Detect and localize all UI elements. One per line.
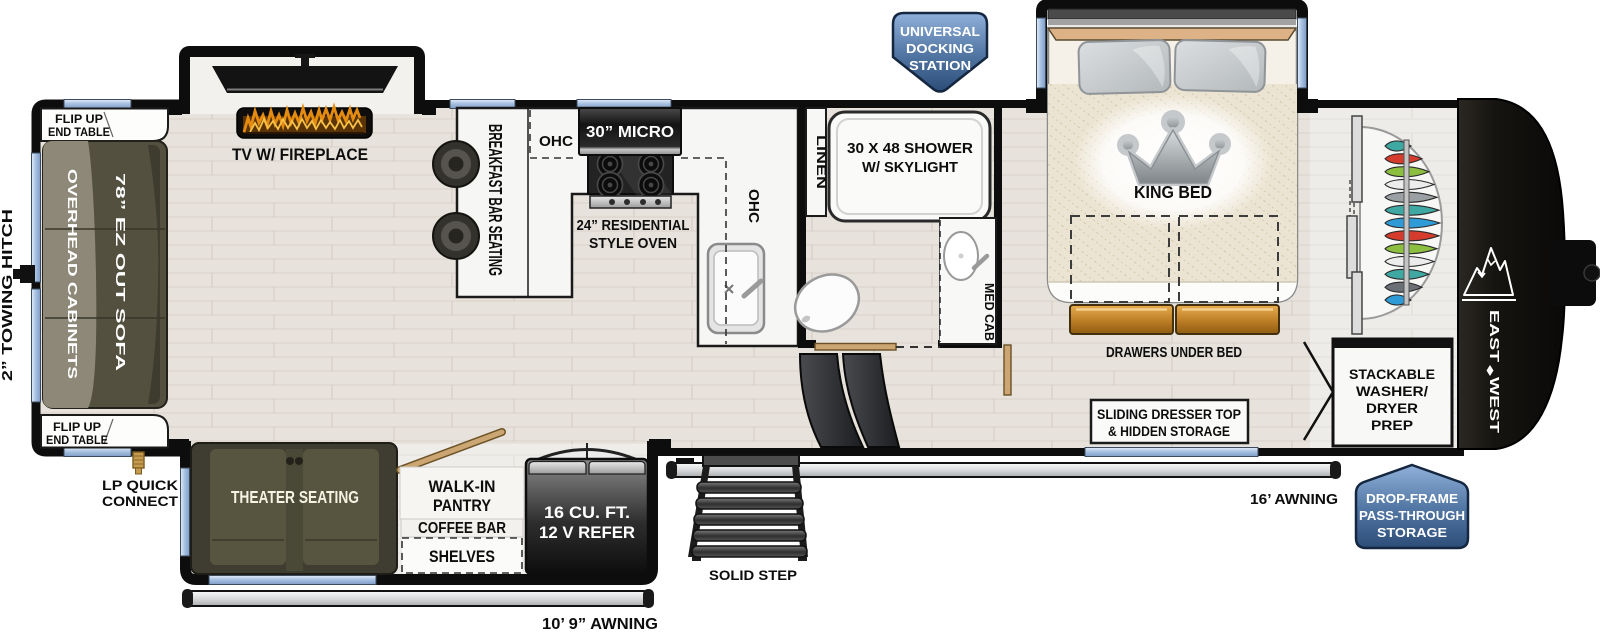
svg-text:PANTRY: PANTRY bbox=[433, 496, 492, 515]
svg-text:END TABLE: END TABLE bbox=[46, 435, 108, 447]
svg-text:BREAKFAST BAR SEATING: BREAKFAST BAR SEATING bbox=[485, 124, 505, 276]
svg-text:OVERHEAD CABINETS: OVERHEAD CABINETS bbox=[65, 169, 79, 379]
svg-text:WASHER/: WASHER/ bbox=[1356, 384, 1428, 399]
svg-text:16’ AWNING: 16’ AWNING bbox=[1250, 492, 1338, 508]
svg-text:W/ SKYLIGHT: W/ SKYLIGHT bbox=[862, 159, 958, 176]
svg-text:DROP-FRAME: DROP-FRAME bbox=[1366, 491, 1458, 506]
svg-text:PREP: PREP bbox=[1371, 418, 1413, 433]
svg-text:10’ 9” AWNING: 10’ 9” AWNING bbox=[542, 616, 658, 633]
svg-text:END TABLE: END TABLE bbox=[48, 127, 110, 139]
svg-text:STORAGE: STORAGE bbox=[1377, 525, 1447, 540]
svg-text:FLIP UP: FLIP UP bbox=[53, 422, 101, 434]
svg-text:WEST: WEST bbox=[1487, 377, 1501, 434]
svg-text:DRYER: DRYER bbox=[1366, 401, 1418, 416]
svg-text:STATION: STATION bbox=[909, 58, 971, 73]
svg-text:LINEN: LINEN bbox=[814, 135, 828, 189]
svg-text:TV W/ FIREPLACE: TV W/ FIREPLACE bbox=[232, 145, 368, 164]
svg-text:30” MICRO: 30” MICRO bbox=[586, 124, 674, 141]
svg-text:2” TOWING HITCH: 2” TOWING HITCH bbox=[0, 209, 16, 381]
svg-text:STACKABLE: STACKABLE bbox=[1349, 367, 1435, 382]
svg-text:CONNECT: CONNECT bbox=[102, 494, 179, 509]
svg-text:FLIP UP: FLIP UP bbox=[55, 114, 103, 126]
svg-text:UNIVERSAL: UNIVERSAL bbox=[900, 24, 980, 39]
svg-text:SHELVES: SHELVES bbox=[429, 547, 495, 566]
svg-text:COFFEE BAR: COFFEE BAR bbox=[418, 520, 506, 537]
svg-text:MED CAB: MED CAB bbox=[982, 283, 996, 341]
svg-text:STYLE OVEN: STYLE OVEN bbox=[589, 235, 677, 252]
svg-text:THEATER SEATING: THEATER SEATING bbox=[231, 487, 359, 507]
svg-text:WALK-IN: WALK-IN bbox=[429, 477, 496, 496]
svg-text:78” EZ OUT SOFA: 78” EZ OUT SOFA bbox=[113, 173, 127, 371]
svg-text:EAST: EAST bbox=[1487, 310, 1501, 363]
svg-text:KING BED: KING BED bbox=[1134, 182, 1212, 202]
svg-text:16 CU. FT.: 16 CU. FT. bbox=[544, 503, 630, 522]
svg-text:30 X 48 SHOWER: 30 X 48 SHOWER bbox=[847, 140, 973, 157]
svg-text:& HIDDEN STORAGE: & HIDDEN STORAGE bbox=[1108, 424, 1230, 439]
svg-text:OHC: OHC bbox=[745, 189, 762, 223]
svg-text:SLIDING DRESSER TOP: SLIDING DRESSER TOP bbox=[1097, 407, 1241, 422]
svg-text:24” RESIDENTIAL: 24” RESIDENTIAL bbox=[577, 217, 690, 234]
svg-text:PASS-THROUGH: PASS-THROUGH bbox=[1359, 508, 1465, 523]
svg-text:SOLID STEP: SOLID STEP bbox=[709, 567, 797, 583]
svg-text:DRAWERS UNDER BED: DRAWERS UNDER BED bbox=[1106, 344, 1242, 361]
svg-text:DOCKING: DOCKING bbox=[906, 41, 974, 56]
svg-text:LP QUICK: LP QUICK bbox=[102, 478, 178, 493]
svg-text:12 V REFER: 12 V REFER bbox=[539, 523, 635, 542]
svg-text:OHC: OHC bbox=[539, 133, 573, 150]
